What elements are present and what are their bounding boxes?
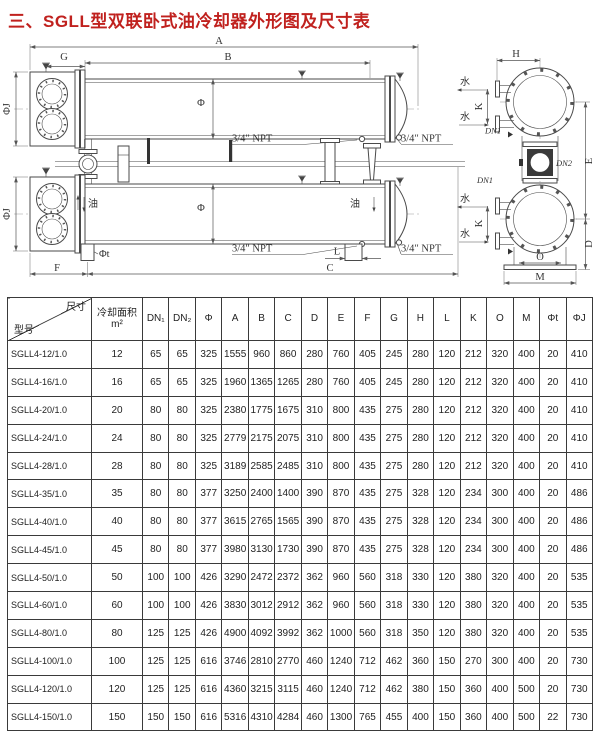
value-cell: 280 bbox=[407, 368, 433, 396]
value-cell: 120 bbox=[434, 480, 460, 508]
value-cell: 280 bbox=[407, 424, 433, 452]
value-cell: 125 bbox=[143, 619, 169, 647]
value-cell: 320 bbox=[487, 368, 513, 396]
value-cell: 400 bbox=[513, 564, 539, 592]
value-cell: 328 bbox=[407, 508, 433, 536]
value-cell: 435 bbox=[354, 536, 380, 564]
value-cell: 280 bbox=[407, 341, 433, 369]
value-cell: 28 bbox=[92, 452, 143, 480]
value-cell: 377 bbox=[195, 508, 221, 536]
value-cell: 275 bbox=[381, 480, 407, 508]
value-cell: 362 bbox=[301, 592, 327, 620]
value-cell: 3992 bbox=[275, 619, 301, 647]
value-cell: 435 bbox=[354, 508, 380, 536]
table-row: SGLL4-150/1.0150150150616531643104284460… bbox=[8, 703, 593, 731]
water-label: 水 bbox=[460, 193, 470, 205]
value-cell: 4092 bbox=[248, 619, 274, 647]
value-cell: 2175 bbox=[248, 424, 274, 452]
col-header-C: C bbox=[275, 298, 301, 341]
table-row: SGLL4-120/1.0120125125616436032153115460… bbox=[8, 675, 593, 703]
value-cell: 435 bbox=[354, 480, 380, 508]
dim-label-phi: Φ bbox=[197, 203, 205, 214]
model-cell: SGLL4-40/1.0 bbox=[8, 508, 92, 536]
value-cell: 330 bbox=[407, 592, 433, 620]
value-cell: 760 bbox=[328, 368, 354, 396]
value-cell: 400 bbox=[513, 452, 539, 480]
value-cell: 100 bbox=[169, 564, 195, 592]
value-cell: 300 bbox=[487, 480, 513, 508]
value-cell: 5316 bbox=[222, 703, 248, 731]
value-cell: 40 bbox=[92, 508, 143, 536]
value-cell: 426 bbox=[195, 619, 221, 647]
value-cell: 390 bbox=[301, 508, 327, 536]
value-cell: 310 bbox=[301, 396, 327, 424]
npt-label: 3/4″ NPT bbox=[401, 244, 442, 255]
value-cell: 80 bbox=[169, 536, 195, 564]
dim-label-c: C bbox=[326, 263, 333, 274]
value-cell: 80 bbox=[143, 508, 169, 536]
value-cell: 318 bbox=[381, 564, 407, 592]
value-cell: 80 bbox=[143, 424, 169, 452]
value-cell: 2372 bbox=[275, 564, 301, 592]
value-cell: 435 bbox=[354, 396, 380, 424]
value-cell: 712 bbox=[354, 675, 380, 703]
dim-label-phi-j: ΦJ bbox=[2, 208, 13, 220]
value-cell: 860 bbox=[275, 341, 301, 369]
value-cell: 455 bbox=[381, 703, 407, 731]
value-cell: 377 bbox=[195, 480, 221, 508]
value-cell: 20 bbox=[540, 424, 566, 452]
col-header-F: F bbox=[354, 298, 380, 341]
dim-label-k: K bbox=[474, 102, 485, 110]
spec-table-container: 尺寸 型号 冷却面积 m² DN₁DN₂ΦABCDEFGHLKOMΦtΦJ SG… bbox=[0, 296, 600, 737]
top-vessel-side-view bbox=[14, 63, 422, 148]
value-cell: 390 bbox=[301, 480, 327, 508]
value-cell: 125 bbox=[143, 675, 169, 703]
value-cell: 460 bbox=[301, 675, 327, 703]
value-cell: 20 bbox=[540, 592, 566, 620]
value-cell: 20 bbox=[540, 368, 566, 396]
dim-label-k: K bbox=[474, 219, 485, 227]
value-cell: 3615 bbox=[222, 508, 248, 536]
corner-header-cell: 尺寸 型号 bbox=[8, 298, 92, 341]
vent-valve-icon bbox=[42, 63, 404, 81]
value-cell: 80 bbox=[92, 619, 143, 647]
dim-label-l: L bbox=[334, 247, 340, 258]
value-cell: 460 bbox=[301, 703, 327, 731]
value-cell: 35 bbox=[92, 480, 143, 508]
value-cell: 270 bbox=[460, 647, 486, 675]
value-cell: 380 bbox=[460, 592, 486, 620]
value-cell: 80 bbox=[169, 508, 195, 536]
value-cell: 390 bbox=[301, 536, 327, 564]
value-cell: 330 bbox=[407, 564, 433, 592]
value-cell: 400 bbox=[513, 508, 539, 536]
model-cell: SGLL4-150/1.0 bbox=[8, 703, 92, 731]
dim-label-b: B bbox=[224, 52, 231, 63]
npt-label: 3/4″ NPT bbox=[232, 244, 273, 255]
value-cell: 2585 bbox=[248, 452, 274, 480]
value-cell: 320 bbox=[487, 341, 513, 369]
value-cell: 150 bbox=[434, 675, 460, 703]
bottom-vessel-side-view bbox=[14, 168, 422, 261]
value-cell: 328 bbox=[407, 480, 433, 508]
col-header-L: L bbox=[434, 298, 460, 341]
value-cell: 400 bbox=[513, 396, 539, 424]
page-title: 三、SGLL型双联卧式油冷却器外形图及尺寸表 bbox=[0, 0, 600, 34]
value-cell: 245 bbox=[381, 341, 407, 369]
value-cell: 2810 bbox=[248, 647, 274, 675]
value-cell: 730 bbox=[566, 647, 593, 675]
value-cell: 3115 bbox=[275, 675, 301, 703]
value-cell: 280 bbox=[301, 341, 327, 369]
value-cell: 150 bbox=[434, 703, 460, 731]
value-cell: 22 bbox=[540, 703, 566, 731]
value-cell: 3189 bbox=[222, 452, 248, 480]
value-cell: 275 bbox=[381, 424, 407, 452]
value-cell: 20 bbox=[540, 619, 566, 647]
value-cell: 1240 bbox=[328, 647, 354, 675]
value-cell: 212 bbox=[460, 424, 486, 452]
water-label: 水 bbox=[460, 228, 470, 240]
value-cell: 65 bbox=[143, 368, 169, 396]
table-row: SGLL4-45/1.04580803773980313017303908704… bbox=[8, 536, 593, 564]
value-cell: 20 bbox=[540, 396, 566, 424]
col-header-A: A bbox=[222, 298, 248, 341]
value-cell: 125 bbox=[143, 647, 169, 675]
value-cell: 400 bbox=[513, 592, 539, 620]
col-header-DN₂: DN₂ bbox=[169, 298, 195, 341]
model-cell: SGLL4-28/1.0 bbox=[8, 452, 92, 480]
value-cell: 730 bbox=[566, 675, 593, 703]
value-cell: 1240 bbox=[328, 675, 354, 703]
model-cell: SGLL4-12/1.0 bbox=[8, 341, 92, 369]
value-cell: 65 bbox=[143, 341, 169, 369]
value-cell: 280 bbox=[407, 452, 433, 480]
col-header-Φt: Φt bbox=[540, 298, 566, 341]
value-cell: 275 bbox=[381, 452, 407, 480]
col-header-ΦJ: ΦJ bbox=[566, 298, 593, 341]
model-cell: SGLL4-45/1.0 bbox=[8, 536, 92, 564]
value-cell: 362 bbox=[301, 619, 327, 647]
corner-label-model: 型号 bbox=[14, 325, 34, 337]
value-cell: 405 bbox=[354, 368, 380, 396]
value-cell: 80 bbox=[169, 480, 195, 508]
value-cell: 212 bbox=[460, 396, 486, 424]
value-cell: 870 bbox=[328, 508, 354, 536]
dim-label-phi-t: Φt bbox=[99, 249, 110, 260]
value-cell: 500 bbox=[513, 675, 539, 703]
value-cell: 320 bbox=[487, 592, 513, 620]
table-row: SGLL4-100/1.0100125125616374628102770460… bbox=[8, 647, 593, 675]
value-cell: 535 bbox=[566, 619, 593, 647]
value-cell: 150 bbox=[92, 703, 143, 731]
value-cell: 310 bbox=[301, 424, 327, 452]
value-cell: 486 bbox=[566, 536, 593, 564]
value-cell: 20 bbox=[540, 452, 566, 480]
value-cell: 2770 bbox=[275, 647, 301, 675]
value-cell: 318 bbox=[381, 592, 407, 620]
value-cell: 320 bbox=[487, 452, 513, 480]
value-cell: 1365 bbox=[248, 368, 274, 396]
value-cell: 300 bbox=[487, 536, 513, 564]
model-cell: SGLL4-60/1.0 bbox=[8, 592, 92, 620]
value-cell: 325 bbox=[195, 396, 221, 424]
value-cell: 125 bbox=[169, 675, 195, 703]
value-cell: 380 bbox=[407, 675, 433, 703]
col-header-B: B bbox=[248, 298, 274, 341]
value-cell: 400 bbox=[513, 647, 539, 675]
drain-valve-icon bbox=[508, 249, 513, 255]
value-cell: 150 bbox=[143, 703, 169, 731]
table-row: SGLL4-20/1.02080803252380177516753108004… bbox=[8, 396, 593, 424]
value-cell: 360 bbox=[407, 647, 433, 675]
value-cell: 410 bbox=[566, 424, 593, 452]
value-cell: 2472 bbox=[248, 564, 274, 592]
value-cell: 212 bbox=[460, 341, 486, 369]
dn2-label: DN2 bbox=[555, 158, 573, 168]
spec-table-body: SGLL4-12/1.01265653251555960860280760405… bbox=[8, 341, 593, 731]
water-label: 水 bbox=[460, 111, 470, 123]
col-header-K: K bbox=[460, 298, 486, 341]
dim-label-d: D bbox=[584, 240, 595, 248]
value-cell: 535 bbox=[566, 592, 593, 620]
value-cell: 120 bbox=[92, 675, 143, 703]
value-cell: 870 bbox=[328, 536, 354, 564]
value-cell: 2485 bbox=[275, 452, 301, 480]
value-cell: 100 bbox=[143, 592, 169, 620]
value-cell: 120 bbox=[434, 396, 460, 424]
value-cell: 960 bbox=[248, 341, 274, 369]
value-cell: 712 bbox=[354, 647, 380, 675]
value-cell: 320 bbox=[487, 396, 513, 424]
value-cell: 1300 bbox=[328, 703, 354, 731]
value-cell: 400 bbox=[487, 675, 513, 703]
value-cell: 2075 bbox=[275, 424, 301, 452]
dn1-label: DN1 bbox=[476, 175, 493, 185]
value-cell: 410 bbox=[566, 396, 593, 424]
value-cell: 1400 bbox=[275, 480, 301, 508]
end-view-connection: DN2 bbox=[519, 136, 573, 183]
value-cell: 500 bbox=[513, 703, 539, 731]
end-view-bottom: DN1 水 水 K O M bbox=[457, 175, 580, 285]
value-cell: 400 bbox=[513, 536, 539, 564]
value-cell: 435 bbox=[354, 424, 380, 452]
value-cell: 80 bbox=[143, 396, 169, 424]
catalog-page: 三、SGLL型双联卧式油冷却器外形图及尺寸表 bbox=[0, 0, 600, 742]
outline-drawing: A B G ΦJ Φ 3/4″ NPT 3/4″ NPT bbox=[0, 34, 600, 296]
water-nozzle-flange bbox=[496, 233, 500, 249]
dim-label-f: F bbox=[54, 263, 60, 274]
value-cell: 800 bbox=[328, 424, 354, 452]
col-header-H: H bbox=[407, 298, 433, 341]
value-cell: 125 bbox=[169, 647, 195, 675]
dim-label-e: E bbox=[584, 158, 595, 164]
dim-label-g: G bbox=[60, 52, 68, 63]
water-label: 水 bbox=[460, 76, 470, 88]
value-cell: 234 bbox=[460, 536, 486, 564]
value-cell: 325 bbox=[195, 424, 221, 452]
table-row: SGLL4-50/1.05010010042632902472237236296… bbox=[8, 564, 593, 592]
value-cell: 12 bbox=[92, 341, 143, 369]
value-cell: 20 bbox=[540, 508, 566, 536]
value-cell: 20 bbox=[540, 675, 566, 703]
value-cell: 400 bbox=[513, 368, 539, 396]
value-cell: 400 bbox=[513, 341, 539, 369]
value-cell: 2380 bbox=[222, 396, 248, 424]
col-header-D: D bbox=[301, 298, 327, 341]
value-cell: 1265 bbox=[275, 368, 301, 396]
dim-label-o: O bbox=[536, 252, 544, 263]
value-cell: 400 bbox=[513, 480, 539, 508]
base-plate bbox=[504, 265, 576, 270]
value-cell: 100 bbox=[169, 592, 195, 620]
value-cell: 80 bbox=[143, 452, 169, 480]
value-cell: 20 bbox=[540, 480, 566, 508]
col-header-Φ: Φ bbox=[195, 298, 221, 341]
dimensions-end-view: E D bbox=[576, 102, 595, 270]
col-header-M: M bbox=[513, 298, 539, 341]
value-cell: 60 bbox=[92, 592, 143, 620]
value-cell: 1960 bbox=[222, 368, 248, 396]
value-cell: 435 bbox=[354, 452, 380, 480]
piping-assembly bbox=[55, 138, 465, 186]
value-cell: 1675 bbox=[275, 396, 301, 424]
value-cell: 80 bbox=[169, 396, 195, 424]
value-cell: 486 bbox=[566, 480, 593, 508]
value-cell: 616 bbox=[195, 675, 221, 703]
dim-label-h: H bbox=[512, 49, 520, 60]
value-cell: 80 bbox=[169, 424, 195, 452]
value-cell: 120 bbox=[434, 452, 460, 480]
col-header-area: 冷却面积 m² bbox=[92, 298, 143, 341]
corner-label-size: 尺寸 bbox=[66, 302, 86, 314]
oil-label: 油 bbox=[88, 197, 98, 210]
value-cell: 360 bbox=[460, 703, 486, 731]
value-cell: 45 bbox=[92, 536, 143, 564]
water-nozzle-flange bbox=[496, 198, 500, 214]
model-cell: SGLL4-16/1.0 bbox=[8, 368, 92, 396]
value-cell: 350 bbox=[407, 619, 433, 647]
value-cell: 320 bbox=[487, 564, 513, 592]
value-cell: 462 bbox=[381, 675, 407, 703]
value-cell: 65 bbox=[169, 341, 195, 369]
col-header-O: O bbox=[487, 298, 513, 341]
value-cell: 4360 bbox=[222, 675, 248, 703]
value-cell: 560 bbox=[354, 619, 380, 647]
value-cell: 318 bbox=[381, 619, 407, 647]
value-cell: 300 bbox=[487, 508, 513, 536]
value-cell: 380 bbox=[460, 564, 486, 592]
value-cell: 462 bbox=[381, 647, 407, 675]
value-cell: 120 bbox=[434, 424, 460, 452]
value-cell: 4310 bbox=[248, 703, 274, 731]
value-cell: 400 bbox=[487, 703, 513, 731]
table-row: SGLL4-60/1.06010010042638303012291236296… bbox=[8, 592, 593, 620]
table-row: SGLL4-12/1.01265653251555960860280760405… bbox=[8, 341, 593, 369]
value-cell: 410 bbox=[566, 341, 593, 369]
value-cell: 65 bbox=[169, 368, 195, 396]
value-cell: 486 bbox=[566, 508, 593, 536]
value-cell: 100 bbox=[143, 564, 169, 592]
water-nozzle-flange bbox=[496, 81, 500, 97]
end-view-top: 水 水 K DN1 H bbox=[457, 49, 580, 142]
value-cell: 328 bbox=[407, 536, 433, 564]
value-cell: 400 bbox=[513, 619, 539, 647]
value-cell: 616 bbox=[195, 647, 221, 675]
value-cell: 1565 bbox=[275, 508, 301, 536]
value-cell: 2779 bbox=[222, 424, 248, 452]
value-cell: 310 bbox=[301, 452, 327, 480]
value-cell: 234 bbox=[460, 508, 486, 536]
value-cell: 325 bbox=[195, 341, 221, 369]
value-cell: 1775 bbox=[248, 396, 274, 424]
value-cell: 760 bbox=[328, 341, 354, 369]
value-cell: 426 bbox=[195, 564, 221, 592]
value-cell: 80 bbox=[143, 536, 169, 564]
value-cell: 20 bbox=[540, 341, 566, 369]
value-cell: 3012 bbox=[248, 592, 274, 620]
value-cell: 150 bbox=[434, 647, 460, 675]
value-cell: 3215 bbox=[248, 675, 274, 703]
dim-label-phi: Φ bbox=[197, 98, 205, 109]
value-cell: 24 bbox=[92, 424, 143, 452]
model-cell: SGLL4-35/1.0 bbox=[8, 480, 92, 508]
value-cell: 4284 bbox=[275, 703, 301, 731]
value-cell: 245 bbox=[381, 368, 407, 396]
value-cell: 125 bbox=[169, 619, 195, 647]
value-cell: 280 bbox=[301, 368, 327, 396]
value-cell: 730 bbox=[566, 703, 593, 731]
value-cell: 320 bbox=[487, 619, 513, 647]
model-cell: SGLL4-50/1.0 bbox=[8, 564, 92, 592]
value-cell: 765 bbox=[354, 703, 380, 731]
value-cell: 120 bbox=[434, 508, 460, 536]
value-cell: 212 bbox=[460, 368, 486, 396]
value-cell: 3130 bbox=[248, 536, 274, 564]
model-cell: SGLL4-24/1.0 bbox=[8, 424, 92, 452]
value-cell: 120 bbox=[434, 341, 460, 369]
table-row: SGLL4-28/1.02880803253189258524853108004… bbox=[8, 452, 593, 480]
value-cell: 3290 bbox=[222, 564, 248, 592]
value-cell: 275 bbox=[381, 396, 407, 424]
value-cell: 410 bbox=[566, 452, 593, 480]
value-cell: 377 bbox=[195, 536, 221, 564]
model-cell: SGLL4-100/1.0 bbox=[8, 647, 92, 675]
value-cell: 20 bbox=[540, 536, 566, 564]
value-cell: 120 bbox=[434, 368, 460, 396]
col-header-E: E bbox=[328, 298, 354, 341]
value-cell: 280 bbox=[407, 396, 433, 424]
drain-valve-icon bbox=[508, 132, 513, 138]
value-cell: 3830 bbox=[222, 592, 248, 620]
value-cell: 80 bbox=[143, 480, 169, 508]
drain-plug-icon bbox=[359, 136, 364, 141]
value-cell: 380 bbox=[460, 619, 486, 647]
value-cell: 20 bbox=[92, 396, 143, 424]
table-row: SGLL4-16/1.01665653251960136512652807604… bbox=[8, 368, 593, 396]
support-column bbox=[325, 143, 335, 182]
dim-label-phi-j: ΦJ bbox=[2, 103, 13, 115]
model-cell: SGLL4-120/1.0 bbox=[8, 675, 92, 703]
valve-icon bbox=[368, 148, 376, 180]
model-cell: SGLL4-80/1.0 bbox=[8, 619, 92, 647]
value-cell: 3250 bbox=[222, 480, 248, 508]
value-cell: 560 bbox=[354, 564, 380, 592]
value-cell: 410 bbox=[566, 368, 593, 396]
value-cell: 4900 bbox=[222, 619, 248, 647]
dn1-label: DN1 bbox=[484, 126, 501, 136]
